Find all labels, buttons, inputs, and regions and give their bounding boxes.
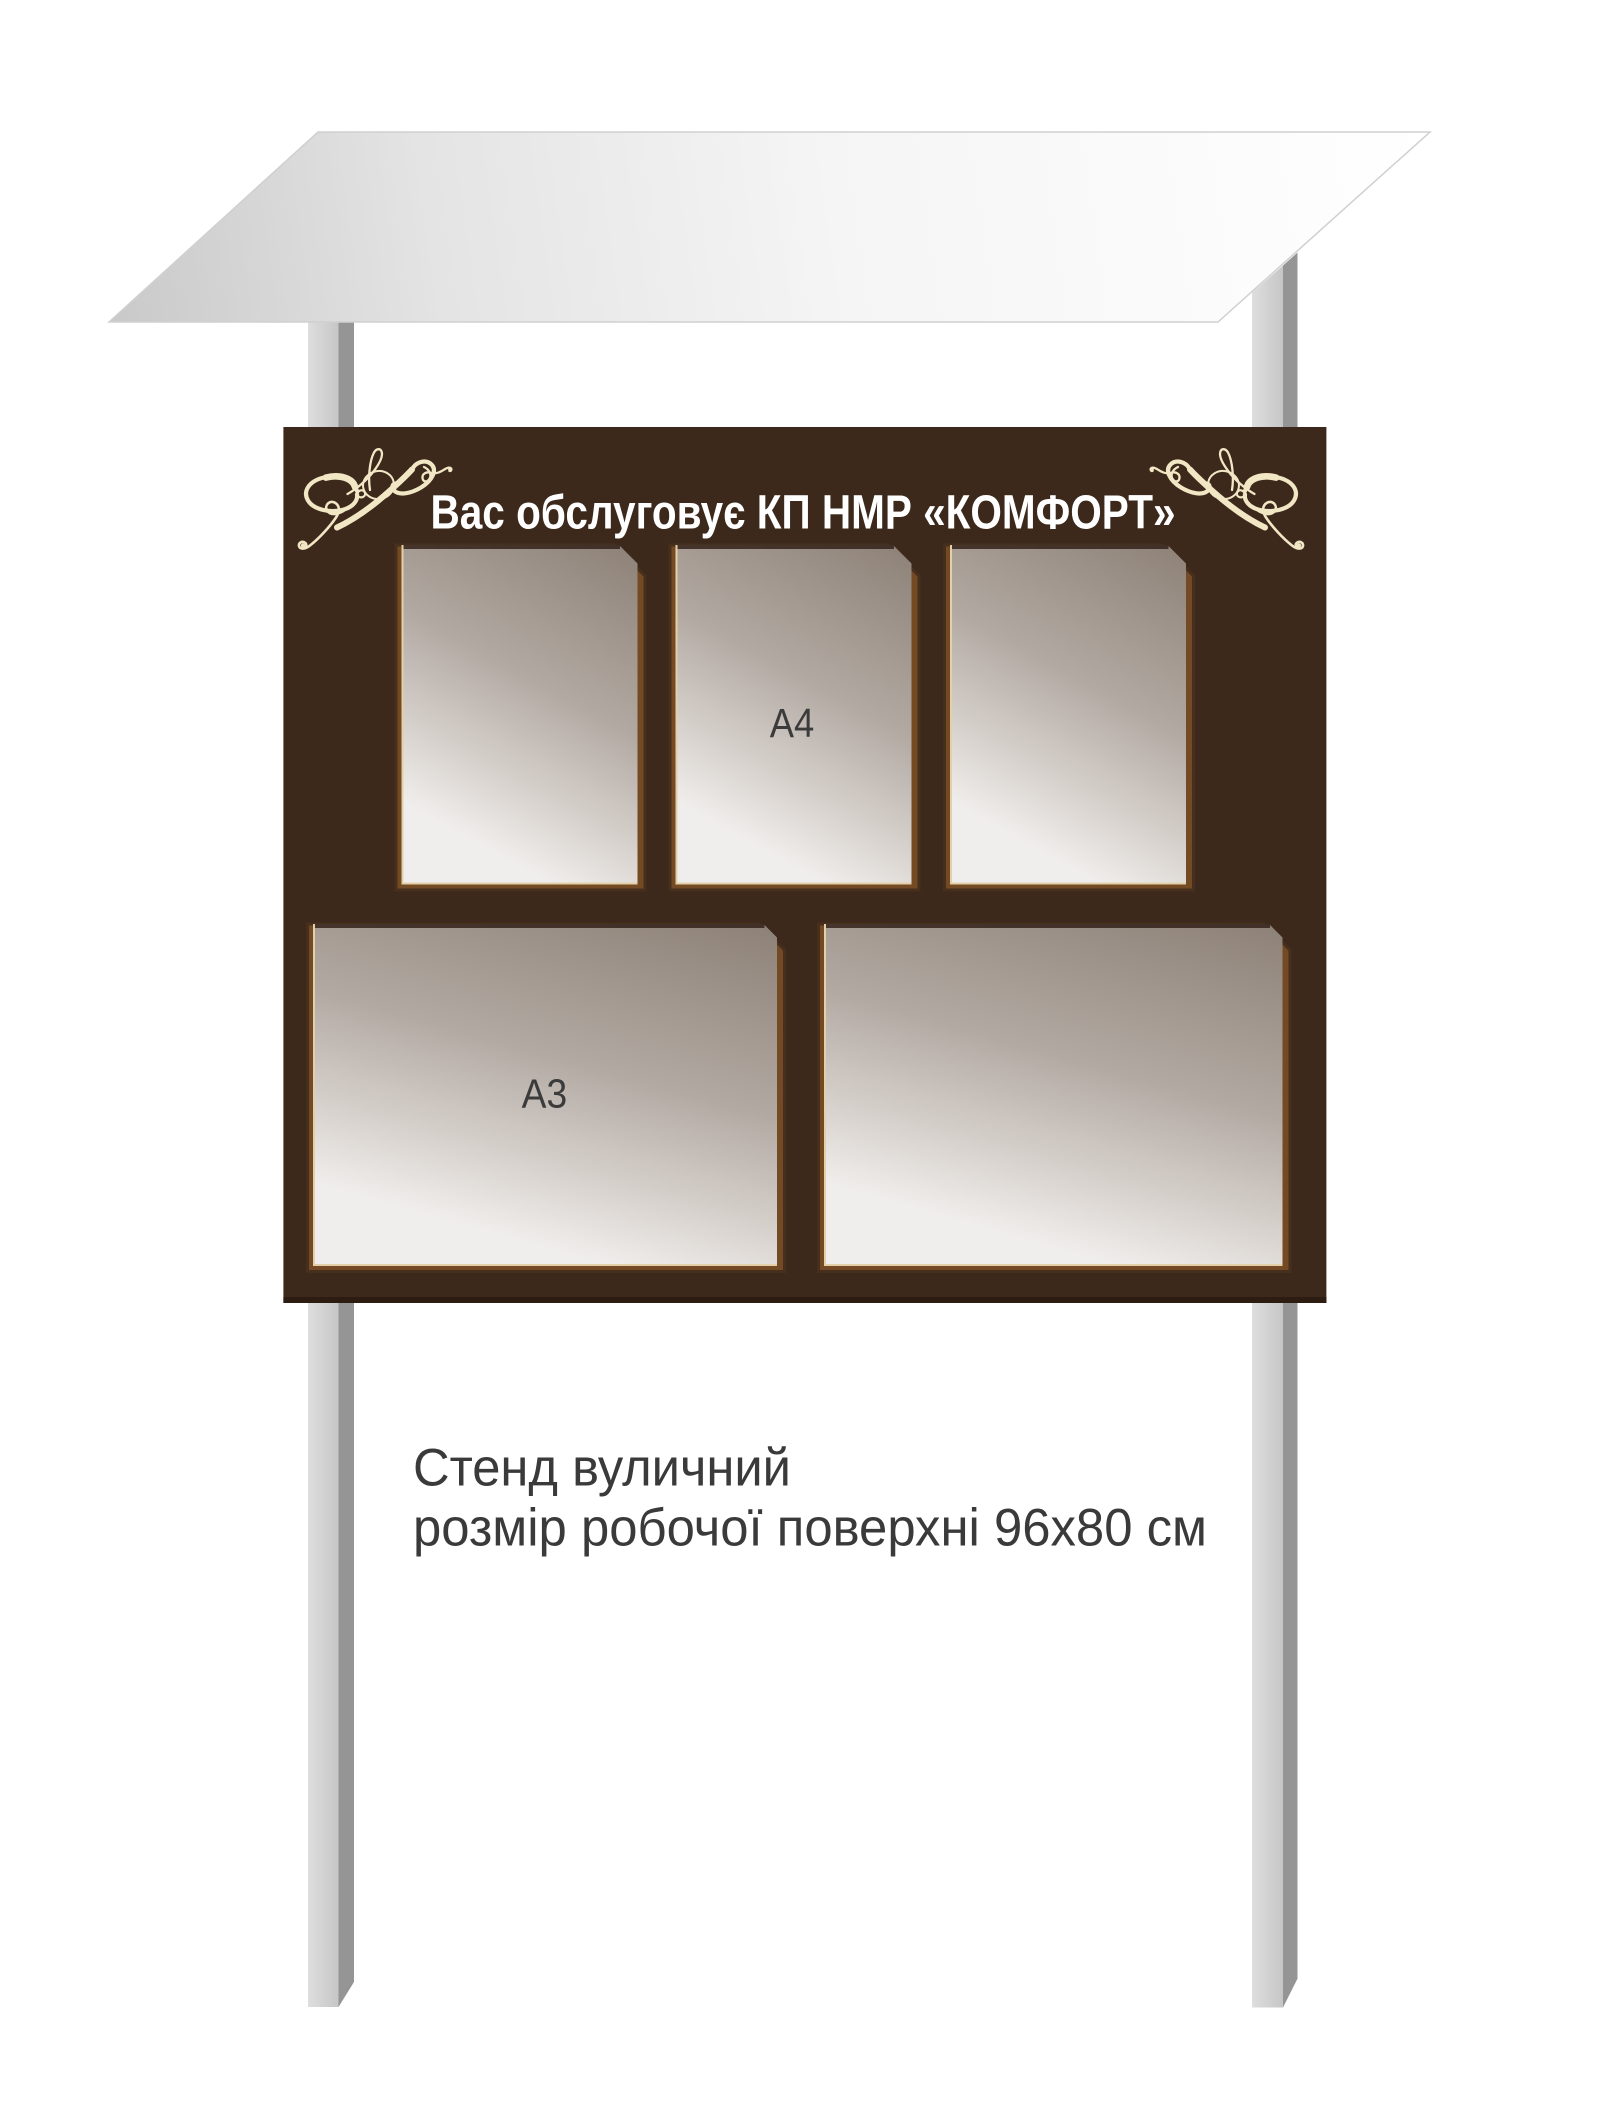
svg-text:А3: А3	[522, 1071, 568, 1117]
svg-text:Стенд вуличний: Стенд вуличний	[413, 1439, 791, 1498]
svg-text:розмір робочої поверхні 96х80: розмір робочої поверхні 96х80 см	[413, 1499, 1207, 1558]
svg-text:А4: А4	[770, 700, 815, 746]
svg-text:Вас обслуговує КП НМР «КОМФОРТ: Вас обслуговує КП НМР «КОМФОРТ»	[431, 487, 1176, 540]
